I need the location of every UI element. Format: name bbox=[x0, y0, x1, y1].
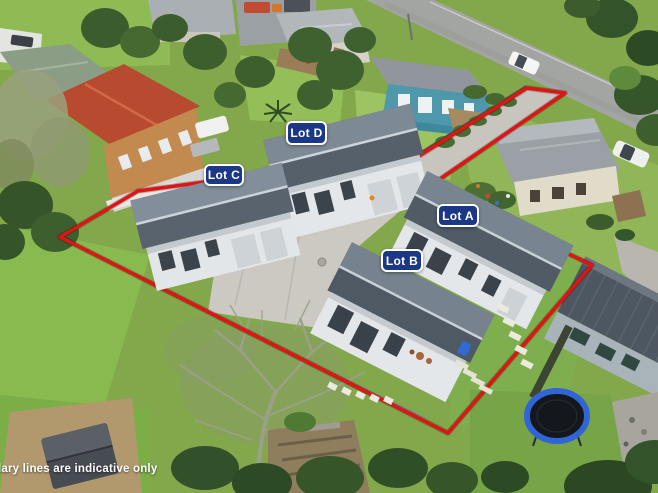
aerial-photo: Lot A Lot B Lot C Lot D Boundary lines a… bbox=[0, 0, 658, 493]
terracotta-pot bbox=[426, 358, 432, 364]
lot-d-label-badge: Lot D bbox=[286, 121, 327, 145]
lot-c-label-badge: Lot C bbox=[204, 164, 244, 186]
lot-a-label-badge: Lot A bbox=[437, 204, 479, 227]
manhole-cover bbox=[318, 258, 326, 266]
trampoline bbox=[527, 391, 587, 446]
red-truck bbox=[244, 2, 270, 13]
worker-hi-vis bbox=[370, 196, 375, 201]
boundary-disclaimer-text: Boundary lines are indicative only bbox=[0, 463, 157, 475]
aerial-scene bbox=[0, 0, 658, 493]
terracotta-pot bbox=[416, 352, 424, 360]
lot-b-label-badge: Lot B bbox=[381, 249, 423, 272]
